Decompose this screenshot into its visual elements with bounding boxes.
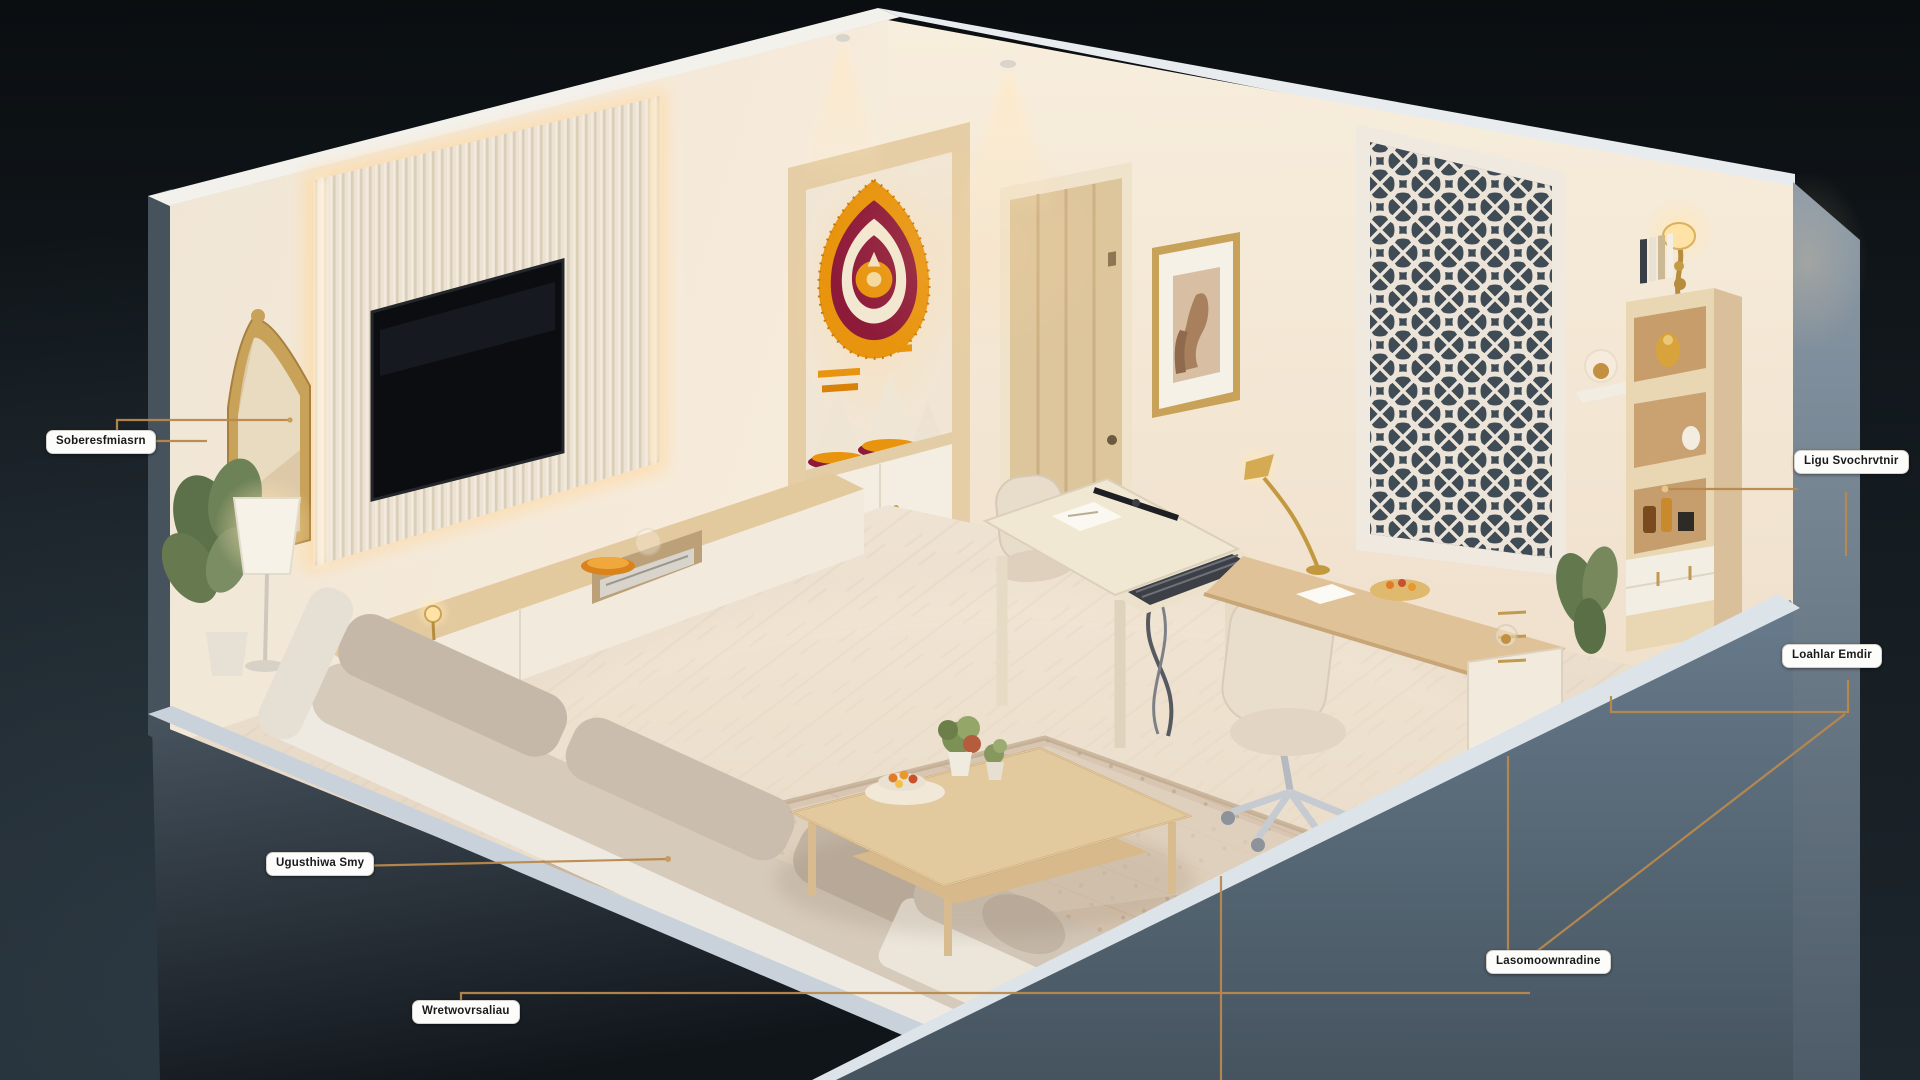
- left-wall-outer-edge: [148, 189, 172, 748]
- room-render: [0, 0, 1920, 1080]
- callout-label-corner-unit: Loahlar Emdir: [1782, 644, 1882, 668]
- callout-label-sofa: Ugusthiwa Smy: [266, 852, 374, 876]
- callout-label-front-wall: Wretwovrsaliau: [412, 1000, 520, 1024]
- framed-painting: [1152, 232, 1240, 418]
- callout-label-shelf-light: Ligu Svochrvtnir: [1794, 450, 1909, 474]
- callout-label-mirror-wall: Soberesfmiasrn: [46, 430, 156, 454]
- jali-screen: [1340, 120, 1580, 590]
- callout-label-side-wall: Lasomoownradine: [1486, 950, 1611, 974]
